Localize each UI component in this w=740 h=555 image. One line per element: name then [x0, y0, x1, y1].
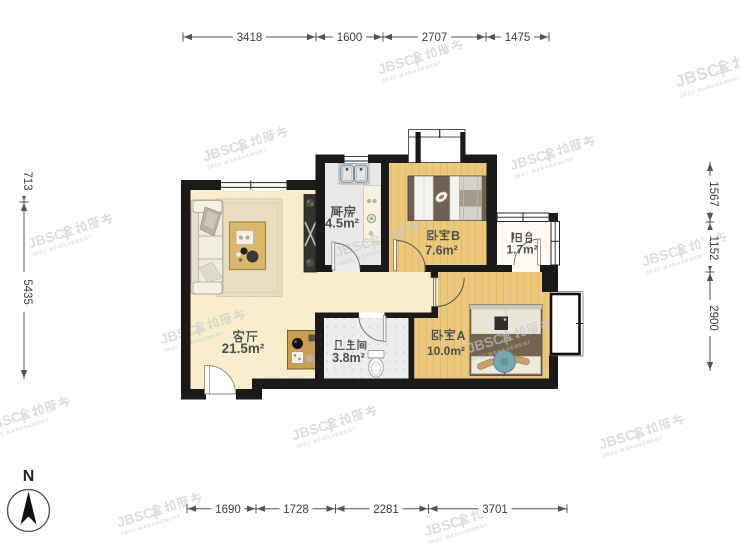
svg-text:7.6m²: 7.6m² [425, 244, 458, 258]
svg-text:3418: 3418 [237, 32, 263, 44]
svg-text:3701: 3701 [482, 504, 508, 516]
svg-text:1600: 1600 [337, 32, 363, 44]
svg-text:1567: 1567 [707, 181, 719, 207]
svg-text:A: A [457, 329, 466, 343]
svg-text:1475: 1475 [505, 32, 531, 44]
svg-text:2900: 2900 [707, 305, 719, 331]
svg-text:1.7m²: 1.7m² [506, 243, 537, 257]
svg-text:21.5m²: 21.5m² [222, 341, 265, 356]
svg-text:N: N [23, 468, 35, 485]
svg-text:1152: 1152 [707, 236, 719, 261]
svg-text:4.5m²: 4.5m² [325, 216, 360, 231]
svg-text:5435: 5435 [21, 279, 33, 305]
svg-text:3.8m²: 3.8m² [332, 351, 365, 365]
svg-text:713: 713 [21, 171, 33, 190]
svg-text:1690: 1690 [215, 504, 241, 516]
svg-text:2707: 2707 [422, 32, 448, 44]
svg-text:2281: 2281 [373, 504, 399, 516]
svg-text:B: B [451, 229, 460, 243]
svg-text:10.0m²: 10.0m² [427, 344, 465, 358]
svg-text:1728: 1728 [283, 504, 309, 516]
